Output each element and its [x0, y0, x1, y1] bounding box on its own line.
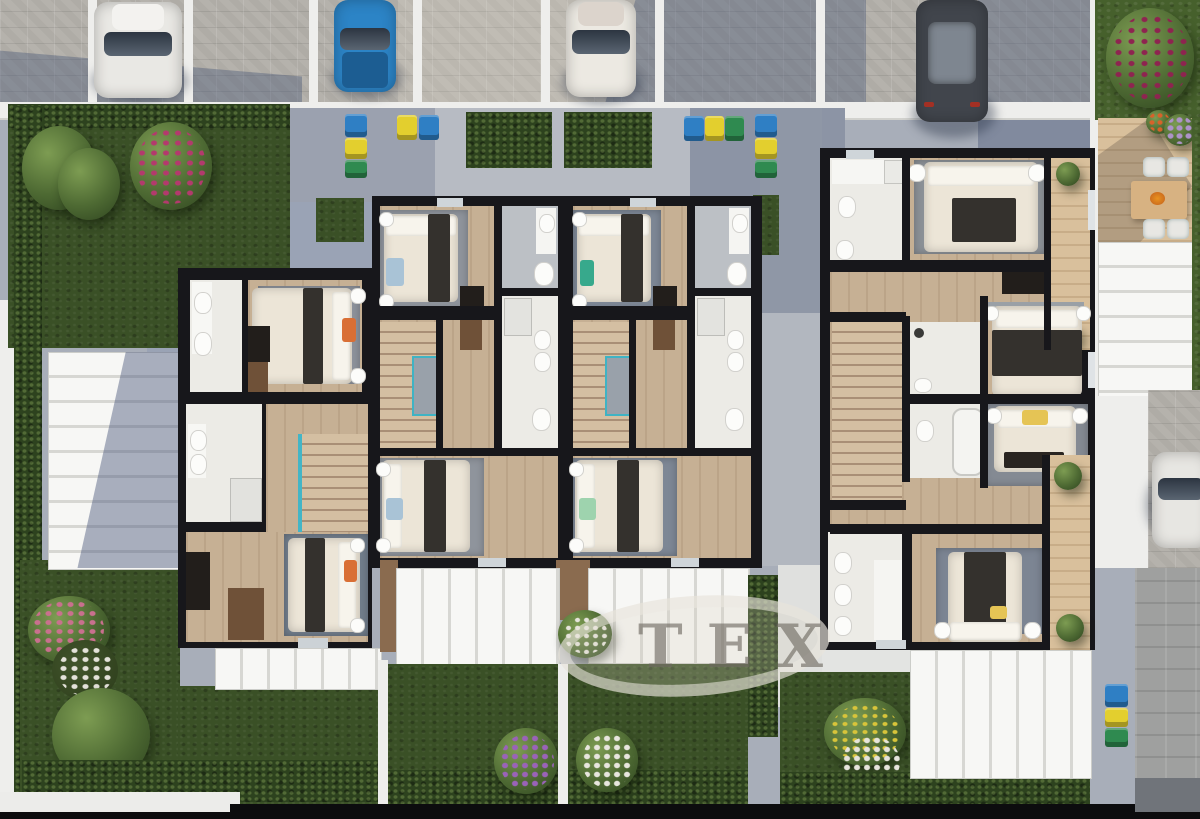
- toilet: [916, 420, 934, 442]
- interior-wall: [573, 306, 687, 320]
- bedside-lamp: [1076, 306, 1091, 321]
- sink: [834, 584, 852, 606]
- bed-pillows: [928, 166, 1034, 186]
- tv-cabinet: [248, 326, 270, 362]
- building-shadow: [978, 0, 1092, 150]
- shower: [504, 298, 532, 336]
- sink: [534, 352, 551, 372]
- lawn-patch: [316, 198, 364, 242]
- car-roof: [578, 2, 624, 26]
- potted-plant: [1056, 614, 1084, 642]
- sink: [534, 330, 551, 350]
- car-white-3: [1152, 452, 1200, 548]
- bed-runner: [303, 288, 323, 384]
- toilet: [532, 408, 551, 431]
- car-windshield: [340, 28, 390, 50]
- potted-plant: [1054, 462, 1082, 490]
- sink: [838, 196, 856, 218]
- bed-pillows: [996, 310, 1078, 328]
- sink: [732, 214, 748, 233]
- accent-teal: [580, 260, 594, 286]
- bedside-lamp: [1072, 408, 1088, 424]
- door-threshold: [846, 150, 874, 159]
- interior-wall: [830, 500, 906, 510]
- bath-counter: [874, 560, 902, 640]
- site-plan-render: TEX: [0, 0, 1200, 819]
- interior-wall: [629, 320, 636, 448]
- toilet: [534, 262, 554, 286]
- car-roof-glass: [928, 22, 976, 84]
- parking-divider: [655, 0, 664, 104]
- accent-pillow-yellow: [1022, 410, 1048, 425]
- wardrobe-wood: [228, 588, 264, 640]
- bed-pillows: [338, 542, 356, 628]
- flower-shrub-white: [582, 734, 634, 788]
- parking-divider: [413, 0, 422, 104]
- recycle-bin-yellow: [345, 138, 367, 159]
- sink: [834, 552, 852, 574]
- recycle-bin-yellow: [1105, 708, 1128, 727]
- toilet: [914, 378, 932, 393]
- accent-pillow-blue: [386, 258, 404, 286]
- car-taillight: [924, 102, 934, 107]
- accent-pillow-mint: [579, 498, 596, 520]
- flower-shrub-purple: [500, 734, 554, 790]
- interior-wall: [1042, 455, 1050, 650]
- wood-cabinet: [248, 362, 268, 392]
- bedside-lamp: [350, 618, 365, 633]
- sink: [194, 292, 212, 314]
- garden-fence: [378, 660, 388, 808]
- sink: [727, 330, 744, 350]
- door-threshold: [630, 198, 656, 207]
- bed-runner: [428, 214, 450, 302]
- recycle-bin-green: [755, 160, 777, 178]
- garden-fence: [558, 664, 568, 808]
- grass-strip: [1192, 118, 1200, 398]
- toilet: [836, 240, 854, 260]
- accent-pillow-yellow: [990, 606, 1007, 619]
- interior-wall: [830, 524, 1045, 534]
- door-threshold: [671, 558, 699, 567]
- door-threshold: [478, 558, 506, 567]
- cabinet-wood: [653, 316, 675, 350]
- closet: [1002, 270, 1050, 294]
- paver-path: [1135, 568, 1200, 780]
- bed-runner: [424, 460, 446, 552]
- car-taillight: [970, 102, 980, 107]
- recycle-bin-green: [1105, 728, 1128, 747]
- rear-canopy: [910, 650, 1092, 779]
- accent-pillow-orange: [342, 318, 356, 342]
- bed-dark-duvet: [992, 330, 1082, 376]
- interior-wall: [902, 532, 912, 642]
- shower: [697, 298, 725, 336]
- window-slit: [1088, 352, 1095, 388]
- tree: [58, 148, 120, 220]
- front-hedge: [564, 112, 652, 168]
- potted-plant: [1056, 162, 1080, 186]
- side-walkway: [1092, 396, 1150, 568]
- interior-wall: [1044, 158, 1051, 350]
- toilet: [727, 262, 747, 286]
- interior-wall: [695, 288, 751, 296]
- interior-wall: [436, 320, 443, 448]
- car-windshield: [572, 30, 630, 54]
- toilet: [725, 408, 744, 431]
- sink: [190, 454, 207, 475]
- rear-canopy: [215, 648, 382, 690]
- shower-drain: [914, 328, 924, 338]
- parking-divider: [184, 0, 193, 104]
- watermark-text: TEX: [638, 612, 858, 676]
- interior-wall: [980, 296, 988, 488]
- accent-pillow-blue: [386, 498, 403, 520]
- bedside-table: [572, 212, 587, 227]
- terrace-chair: [1167, 157, 1189, 177]
- flower-pot-purple: [1166, 116, 1194, 144]
- bed-runner: [305, 538, 325, 632]
- car-windshield: [1158, 478, 1200, 500]
- door-threshold: [298, 638, 328, 648]
- sink: [727, 352, 744, 372]
- recycle-bin-yellow: [705, 116, 724, 141]
- car-roof: [112, 4, 164, 30]
- door-threshold: [437, 198, 463, 207]
- bedside-table: [569, 538, 584, 553]
- recycle-bin-yellow: [755, 138, 777, 159]
- recycle-bin-blue: [684, 116, 704, 141]
- sink: [539, 214, 555, 233]
- interior-wall: [687, 206, 695, 448]
- bedside-table: [569, 462, 584, 477]
- shower: [230, 478, 262, 522]
- flower-shrub-magenta: [1112, 14, 1190, 102]
- recycle-bin-blue: [345, 114, 367, 137]
- bedside-lamp: [934, 622, 951, 639]
- window-slit: [1088, 190, 1095, 230]
- recycle-bin-green: [725, 116, 744, 141]
- wardrobe: [186, 552, 210, 610]
- hedge-top: [8, 104, 290, 128]
- bedside-lamp: [350, 538, 365, 553]
- bedside-lamp: [986, 408, 1002, 424]
- interior-wall: [902, 394, 1092, 404]
- cabinet-wood: [460, 316, 482, 350]
- rear-canopy: [396, 568, 560, 666]
- car-windshield: [104, 32, 172, 56]
- staircase: [302, 434, 368, 532]
- pouf: [376, 462, 391, 477]
- site-boundary: [0, 812, 1200, 819]
- bed-throw: [952, 198, 1016, 242]
- table-flower-bowl: [1150, 192, 1165, 205]
- interior-wall: [494, 206, 502, 448]
- bed-runner: [621, 214, 643, 302]
- glass-balustrade: [298, 434, 302, 532]
- recycle-bin-blue: [1105, 684, 1128, 707]
- recycle-bin-blue: [755, 114, 777, 137]
- interior-wall: [502, 288, 558, 296]
- bedside-lamp: [1024, 622, 1041, 639]
- bedside-lamp: [350, 288, 366, 304]
- flower-shrub-pink: [136, 128, 206, 204]
- parking-divider: [541, 0, 550, 104]
- side-canopy-right: [1098, 242, 1194, 398]
- parking-divider: [816, 0, 825, 104]
- bedside-lamp: [908, 164, 926, 182]
- toilet: [194, 332, 212, 356]
- accent-pillow-orange: [344, 560, 357, 582]
- car-hood: [342, 52, 388, 88]
- staircase: [832, 322, 902, 502]
- sink: [190, 430, 207, 451]
- recycle-bin-blue: [419, 115, 439, 140]
- front-hedge: [466, 112, 552, 168]
- bed-pillows: [950, 622, 1020, 640]
- interior-wall: [380, 306, 494, 320]
- interior-wall: [830, 260, 1045, 272]
- terrace-chair: [1143, 219, 1165, 239]
- interior-wall: [830, 312, 906, 322]
- bedside-lamp: [350, 368, 366, 384]
- terrace-chair: [1167, 219, 1189, 239]
- bed-runner: [617, 460, 639, 552]
- recycle-bin-yellow: [397, 115, 417, 140]
- interior-wall: [902, 158, 910, 268]
- bedside-table: [379, 212, 394, 227]
- terrace-chair: [1143, 157, 1165, 177]
- pouf: [376, 538, 391, 553]
- building-shadow: [604, 0, 866, 107]
- interior-wall: [380, 448, 752, 456]
- door-threshold: [876, 640, 906, 649]
- recycle-bin-green: [345, 160, 367, 178]
- parking-divider: [309, 0, 318, 104]
